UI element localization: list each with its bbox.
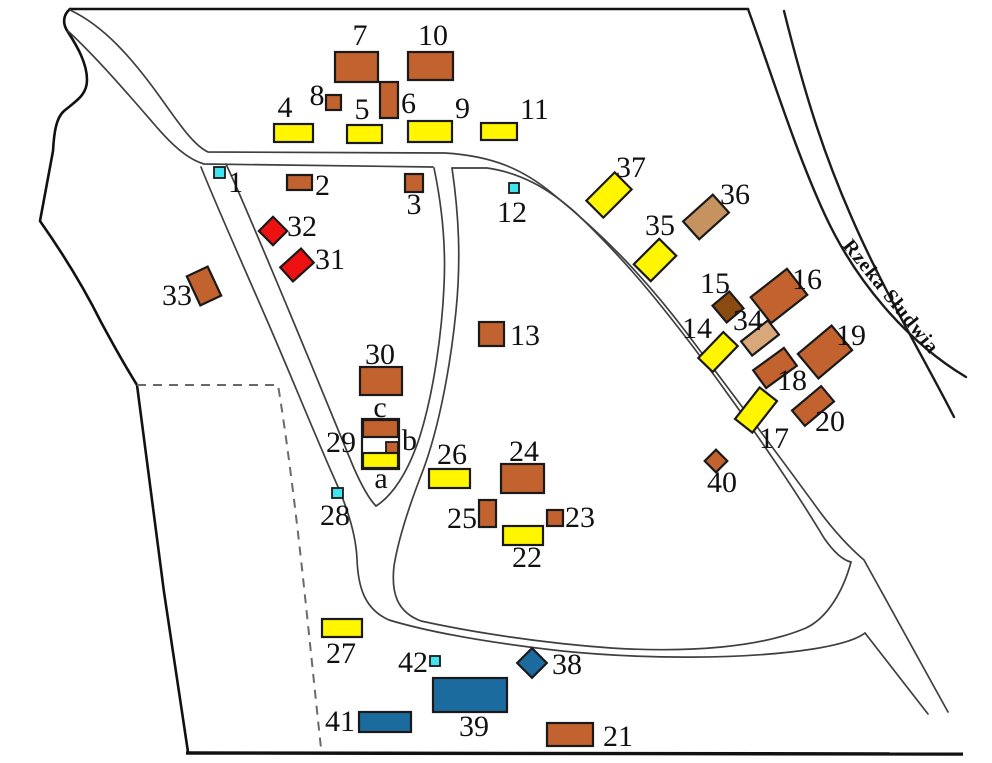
building-label-19: 19 (836, 319, 866, 352)
building-label-1: 1 (228, 166, 243, 199)
building-label-14: 14 (682, 312, 712, 345)
building-6 (380, 82, 398, 118)
building-31 (280, 249, 314, 282)
building-38 (517, 648, 547, 678)
building-9 (408, 121, 452, 142)
building-label-7: 7 (353, 19, 368, 52)
building-12 (509, 183, 519, 193)
site-plan-svg: Rzeka Słudwia 12345678910111213141516171… (0, 0, 992, 763)
building-label-b: b (402, 424, 417, 457)
building-label-29: 29 (326, 426, 356, 459)
building-label-2: 2 (315, 169, 330, 202)
building-label-17: 17 (759, 422, 789, 455)
road-left-west-to-bottom-south-line (201, 167, 928, 714)
building-32 (259, 217, 287, 245)
building-label-37: 37 (616, 151, 646, 184)
building-26 (429, 469, 470, 488)
building-39 (433, 678, 507, 712)
building-label-10: 10 (418, 19, 448, 52)
building-label-24: 24 (509, 435, 539, 468)
building-label-15: 15 (700, 267, 730, 300)
building-label-3: 3 (407, 188, 422, 221)
building-11 (481, 123, 517, 140)
building-8 (326, 95, 341, 110)
building-label-22: 22 (512, 541, 542, 574)
building-label-c: c (373, 391, 386, 424)
building-28 (332, 488, 343, 498)
building-label-41: 41 (325, 705, 355, 738)
building-23 (547, 510, 563, 526)
building-label-4: 4 (278, 91, 293, 124)
building-10 (408, 52, 453, 80)
building-label-39: 39 (459, 710, 489, 743)
boundary-bottom-edge (186, 753, 963, 754)
building-label-28: 28 (320, 499, 350, 532)
building-label-13: 13 (510, 319, 540, 352)
building-4 (274, 124, 313, 142)
building-label-33: 33 (162, 279, 192, 312)
building-label-12: 12 (497, 196, 527, 229)
road-middle-east-to-bottom-north-line (393, 168, 851, 650)
building-label-18: 18 (777, 364, 807, 397)
building-27 (322, 619, 362, 637)
building-24 (501, 464, 544, 493)
building-label-23: 23 (565, 501, 595, 534)
site-plan-figure: Rzeka Słudwia 12345678910111213141516171… (0, 0, 992, 763)
building-label-5: 5 (355, 93, 370, 126)
building-label-6: 6 (401, 87, 416, 120)
building-label-30: 30 (365, 338, 395, 371)
building-21 (547, 723, 593, 746)
building-label-31: 31 (315, 243, 345, 276)
building-25 (479, 500, 496, 527)
building-5 (347, 125, 382, 143)
building-label-21: 21 (603, 720, 633, 753)
building-41 (359, 712, 411, 732)
building-label-8: 8 (310, 79, 325, 112)
building-13 (479, 322, 504, 346)
dashed-parcel-line (137, 385, 321, 748)
boundary-left-edge (40, 9, 188, 752)
building-42 (430, 656, 440, 666)
building-label-9: 9 (455, 92, 470, 125)
building-label-16: 16 (792, 263, 822, 296)
building-label-38: 38 (552, 648, 582, 681)
building-label-a: a (374, 462, 387, 495)
building-label-34: 34 (733, 304, 763, 337)
building-label-32: 32 (287, 210, 317, 243)
building-label-26: 26 (437, 438, 467, 471)
building-label-42: 42 (398, 646, 428, 679)
building-label-20: 20 (815, 405, 845, 438)
building-label-25: 25 (447, 502, 477, 535)
building-7 (335, 52, 378, 82)
building-label-35: 35 (645, 209, 675, 242)
building-label-36: 36 (720, 178, 750, 211)
building-35 (634, 239, 676, 281)
building-label-11: 11 (520, 93, 549, 126)
building-29-b (386, 442, 398, 453)
building-2 (287, 175, 312, 190)
building-label-27: 27 (326, 637, 356, 670)
building-label-40: 40 (707, 466, 737, 499)
building-1 (214, 167, 225, 178)
buildings-layer (187, 52, 852, 746)
boundary-outline (40, 9, 963, 754)
